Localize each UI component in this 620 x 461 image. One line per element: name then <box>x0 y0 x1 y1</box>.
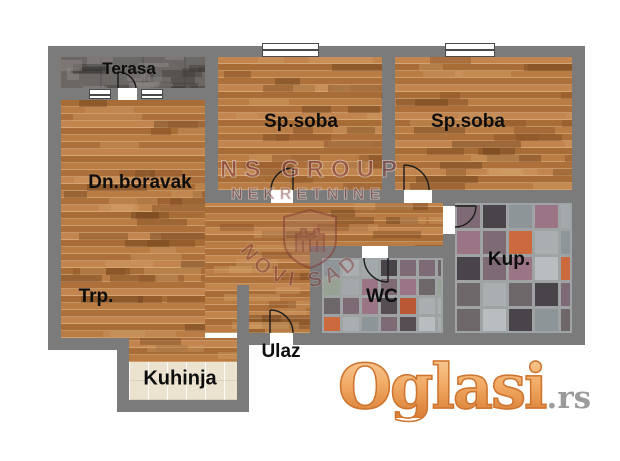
trp-label: Trp. <box>79 286 114 308</box>
wc-label: WC <box>366 286 398 308</box>
oglasi-logo-suffix: .rs <box>547 380 592 416</box>
ulaz-label: Ulaz <box>261 341 300 363</box>
oglasi-logo: Oglasi .rs <box>338 356 591 418</box>
watermark-shield-icon <box>284 210 336 268</box>
dn-boravak-label: Dn.boravak <box>88 172 191 194</box>
sp-soba-2-label: Sp.soba <box>431 111 505 133</box>
sp-soba-1-label: Sp.soba <box>264 111 338 133</box>
oglasi-logo-text: Oglasi <box>338 356 546 418</box>
watermark-agency-name: NS GROUP <box>220 156 404 184</box>
floorplan-image: NS GROUP NEKRETNINE NOVI SAD Terasa Dn.b… <box>0 0 620 461</box>
kup-label: Kup. <box>488 249 530 271</box>
terasa-label: Terasa <box>102 59 156 79</box>
kuhinja-label: Kuhinja <box>143 368 216 391</box>
watermark-agency-sub: NEKRETNINE <box>231 186 385 204</box>
